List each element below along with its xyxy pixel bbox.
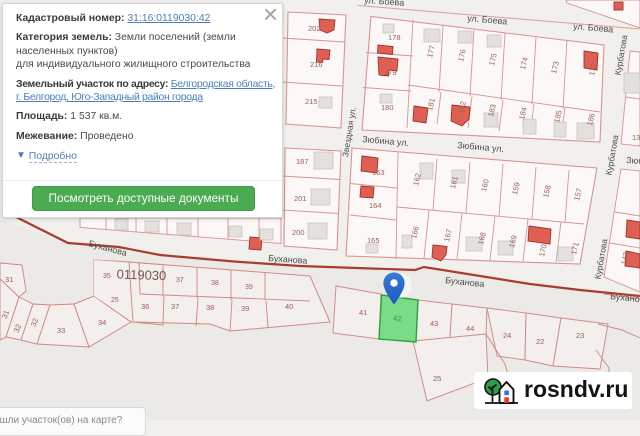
svg-text:165: 165: [367, 236, 380, 245]
svg-text:215: 215: [305, 97, 318, 106]
svg-text:0119030: 0119030: [116, 267, 166, 284]
svg-text:35: 35: [103, 273, 111, 280]
svg-text:22: 22: [536, 337, 544, 346]
svg-text:24: 24: [503, 331, 511, 340]
svg-text:33: 33: [57, 326, 65, 335]
svg-text:201: 201: [294, 194, 307, 203]
svg-text:42: 42: [392, 314, 402, 324]
svg-text:187: 187: [296, 157, 309, 166]
svg-text:25: 25: [433, 374, 441, 383]
svg-text:163: 163: [372, 168, 385, 177]
svg-text:38: 38: [206, 303, 214, 312]
svg-text:202: 202: [308, 24, 321, 33]
svg-text:164: 164: [369, 201, 382, 210]
svg-text:41: 41: [359, 308, 367, 317]
svg-text:40: 40: [285, 302, 293, 311]
svg-text:31: 31: [5, 275, 13, 284]
svg-text:133: 133: [632, 133, 640, 142]
svg-text:38: 38: [211, 280, 219, 287]
svg-text:23: 23: [576, 331, 584, 340]
svg-text:180: 180: [381, 103, 394, 112]
svg-text:37: 37: [171, 302, 179, 311]
svg-text:44: 44: [466, 324, 474, 333]
svg-text:37: 37: [176, 277, 184, 284]
svg-text:178: 178: [388, 33, 401, 42]
svg-text:39: 39: [241, 304, 249, 313]
svg-text:34: 34: [98, 318, 106, 327]
svg-text:200: 200: [292, 228, 305, 237]
svg-text:43: 43: [430, 319, 438, 328]
svg-text:39: 39: [245, 284, 253, 291]
svg-text:25: 25: [111, 297, 119, 304]
svg-text:179: 179: [384, 68, 397, 77]
svg-text:36: 36: [141, 302, 149, 311]
svg-text:216: 216: [310, 60, 323, 69]
